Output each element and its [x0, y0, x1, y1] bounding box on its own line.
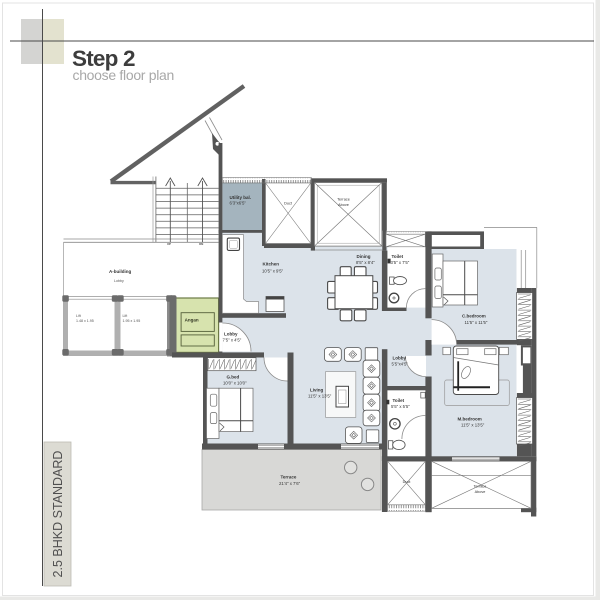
svg-text:21'4" x 7'6": 21'4" x 7'6": [279, 481, 301, 486]
svg-text:A-building: A-building: [109, 269, 131, 274]
svg-text:UP: UP: [167, 242, 171, 246]
svg-text:G.bed: G.bed: [227, 375, 240, 380]
svg-text:Terrace: Terrace: [281, 475, 297, 480]
svg-text:10'5" x 9'5": 10'5" x 9'5": [262, 269, 284, 274]
svg-text:Utility bal.: Utility bal.: [230, 195, 252, 200]
svg-text:11'5" x 13'5": 11'5" x 13'5": [308, 394, 332, 399]
svg-text:8'5" x 8'4": 8'5" x 8'4": [356, 260, 375, 265]
svg-text:Above: Above: [475, 490, 486, 494]
svg-text:Living: Living: [310, 388, 324, 393]
svg-text:1.95 x 1.95: 1.95 x 1.95: [123, 319, 141, 323]
svg-text:DN: DN: [199, 242, 203, 246]
svg-text:11'5" x 11'5": 11'5" x 11'5": [465, 320, 488, 325]
svg-text:Lobby: Lobby: [224, 332, 238, 337]
svg-text:3'5" x 7'5": 3'5" x 7'5": [391, 260, 410, 265]
svg-text:Lobby: Lobby: [393, 356, 407, 361]
svg-text:Lift: Lift: [123, 314, 128, 318]
svg-text:Terrace: Terrace: [337, 198, 350, 202]
svg-text:2.5 BHKD STANDARD: 2.5 BHKD STANDARD: [51, 451, 65, 578]
svg-text:M.bedroom: M.bedroom: [458, 417, 482, 422]
svg-text:7'5" x 4'5": 7'5" x 4'5": [223, 338, 242, 343]
svg-text:Angan: Angan: [185, 318, 199, 323]
svg-text:Terrace: Terrace: [474, 485, 487, 489]
svg-text:C.bedroom: C.bedroom: [462, 314, 486, 319]
svg-text:Duct: Duct: [284, 202, 293, 206]
svg-text:Lobby: Lobby: [114, 279, 124, 283]
svg-text:Toilet: Toilet: [393, 398, 405, 403]
svg-text:5'5" x 5'5": 5'5" x 5'5": [391, 404, 410, 409]
svg-text:Duct: Duct: [403, 480, 412, 484]
svg-text:10'0" x 10'0": 10'0" x 10'0": [223, 381, 247, 386]
svg-text:Toilet: Toilet: [392, 254, 404, 259]
svg-text:Kitchen: Kitchen: [263, 262, 280, 267]
svg-text:Lift: Lift: [76, 314, 81, 318]
svg-text:5'5"x4'5": 5'5"x4'5": [392, 362, 409, 367]
svg-text:Dining: Dining: [357, 254, 371, 259]
svg-text:11'5" x 13'5": 11'5" x 13'5": [461, 423, 485, 428]
svg-text:1.48 x 1.95: 1.48 x 1.95: [76, 319, 94, 323]
svg-text:Above: Above: [338, 203, 349, 207]
svg-text:6'3"x6'5": 6'3"x6'5": [230, 201, 247, 206]
svg-text:choose floor plan: choose floor plan: [73, 67, 175, 83]
